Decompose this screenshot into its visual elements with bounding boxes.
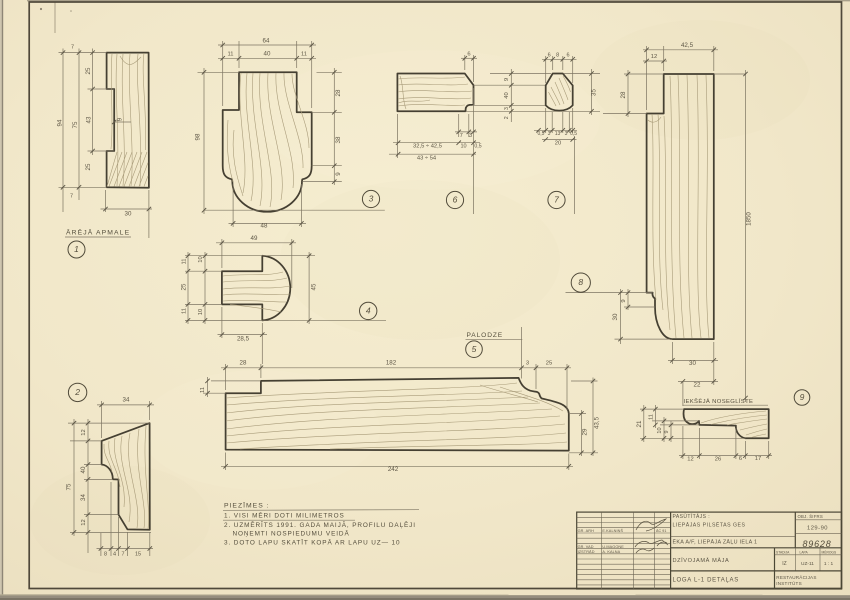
svg-text:INSTITŪTS: INSTITŪTS — [776, 580, 802, 586]
svg-text:98: 98 — [195, 133, 202, 140]
svg-text:3: 3 — [548, 131, 551, 137]
svg-text:0,5: 0,5 — [474, 144, 481, 150]
svg-text:12: 12 — [651, 54, 657, 60]
svg-text:1850: 1850 — [746, 212, 753, 226]
svg-text:1: 1 — [74, 244, 79, 254]
svg-text:A. KALNA: A. KALNA — [602, 550, 620, 554]
svg-text:11: 11 — [182, 308, 188, 314]
svg-text:12: 12 — [687, 457, 693, 463]
svg-text:3: 3 — [369, 194, 374, 204]
svg-text:30: 30 — [125, 211, 132, 218]
svg-text:0,5: 0,5 — [538, 131, 545, 137]
svg-text:75: 75 — [66, 483, 73, 490]
svg-text:11: 11 — [200, 387, 206, 393]
svg-text:94: 94 — [57, 119, 64, 126]
svg-text:21: 21 — [636, 420, 643, 427]
svg-text:3: 3 — [526, 361, 529, 367]
svg-text:PALODZE: PALODZE — [467, 332, 504, 339]
svg-text:PASŪTĪTĀJS :: PASŪTĪTĀJS : — [673, 513, 711, 520]
svg-text:40: 40 — [504, 92, 510, 98]
svg-text:25: 25 — [85, 67, 92, 74]
svg-text:3: 3 — [565, 131, 568, 137]
svg-text:17: 17 — [755, 456, 761, 462]
svg-text:38: 38 — [335, 136, 342, 143]
svg-text:9: 9 — [504, 78, 510, 81]
svg-text:242: 242 — [388, 466, 399, 473]
svg-text:13: 13 — [555, 131, 561, 137]
svg-text:MĒROGS: MĒROGS — [822, 551, 837, 555]
svg-text:1. VISI MĒRI DOTI MILIMETRO: 1. VISI MĒRI DOTI MILIMETROS — [224, 512, 345, 520]
svg-text:40: 40 — [264, 51, 271, 58]
svg-text:28,5: 28,5 — [237, 336, 250, 343]
svg-text:28: 28 — [620, 91, 627, 98]
svg-text:NOŅEMTI NOSPIEDUMU VEIDĀ: NOŅEMTI NOSPIEDUMU VEIDĀ — [233, 529, 350, 537]
svg-text:30: 30 — [612, 313, 619, 320]
svg-text:7: 7 — [554, 195, 559, 205]
svg-text:RESTAURĀCIJAS: RESTAURĀCIJAS — [776, 574, 816, 580]
svg-text:6: 6 — [739, 456, 742, 462]
svg-text:U.MAGONE: U.MAGONE — [602, 545, 624, 549]
svg-text:GR. ARH: GR. ARH — [578, 529, 594, 533]
svg-text:E.KALNIŅŠ: E.KALNIŅŠ — [602, 528, 623, 533]
svg-text:ĀRĒJĀ APMALE: ĀRĒJĀ APMALE — [66, 229, 130, 237]
svg-text:2: 2 — [504, 116, 510, 119]
svg-text:3: 3 — [469, 133, 472, 139]
svg-text:25: 25 — [181, 283, 188, 290]
svg-text:LOGA L-1 DETAĻAS: LOGA L-1 DETAĻAS — [673, 578, 739, 584]
svg-text:11: 11 — [227, 52, 233, 58]
svg-text:9: 9 — [800, 392, 805, 402]
svg-text:ĀC 91: ĀC 91 — [656, 529, 667, 533]
svg-text:10: 10 — [198, 256, 204, 262]
svg-text:8: 8 — [556, 53, 559, 59]
svg-text:LIEPĀJAS PILSĒTAS GES: LIEPĀJAS PILSĒTAS GES — [673, 522, 746, 529]
svg-text:15: 15 — [135, 552, 141, 558]
svg-text:6: 6 — [467, 52, 470, 58]
svg-text:6: 6 — [566, 53, 569, 59]
svg-text:8: 8 — [578, 277, 583, 287]
svg-text:7: 7 — [71, 45, 74, 51]
svg-text:3. DOTO LAPU SKATĪT KOPĀ A: 3. DOTO LAPU SKATĪT KOPĀ AR LAPU UZ— 10 — [224, 538, 400, 546]
svg-text:ĒKA A/F, LIEPĀJA ZĀĻU IELA 1: ĒKA A/F, LIEPĀJA ZĀĻU IELA 1 — [673, 539, 758, 546]
svg-text:48: 48 — [261, 223, 268, 230]
svg-text:IZ: IZ — [782, 561, 786, 567]
svg-text:PIEZĪMES :: PIEZĪMES : — [224, 501, 270, 509]
svg-text:182: 182 — [386, 360, 397, 367]
svg-text:29: 29 — [582, 428, 589, 435]
svg-text:25: 25 — [85, 163, 92, 170]
svg-text:43,5: 43,5 — [594, 416, 601, 429]
svg-text:STADIJA: STADIJA — [776, 551, 790, 555]
svg-text:DZĪVOJAMĀ MĀJA: DZĪVOJAMĀ MĀJA — [673, 557, 730, 564]
svg-text:10: 10 — [657, 427, 663, 433]
svg-text:32,5 ÷ 42,5: 32,5 ÷ 42,5 — [413, 144, 442, 150]
svg-text:43 ÷ 54: 43 ÷ 54 — [417, 155, 437, 161]
svg-text:2: 2 — [74, 387, 80, 397]
svg-text:25: 25 — [546, 361, 552, 367]
svg-text:7: 7 — [460, 133, 463, 139]
svg-text:IEKŠĒJĀ NOSEGLĪSTE: IEKŠĒJĀ NOSEGLĪSTE — [684, 398, 754, 405]
svg-text:5: 5 — [472, 344, 477, 354]
svg-text:43: 43 — [86, 116, 93, 123]
svg-text:11: 11 — [301, 52, 307, 58]
svg-text:9: 9 — [335, 172, 342, 176]
svg-text:11: 11 — [182, 258, 188, 264]
svg-text:20: 20 — [555, 141, 561, 147]
svg-text:22: 22 — [694, 381, 701, 388]
svg-text:45: 45 — [311, 283, 318, 290]
svg-text:IZSTRĀD: IZSTRĀD — [578, 550, 595, 554]
svg-text:4: 4 — [113, 552, 116, 558]
svg-text:6: 6 — [548, 53, 551, 59]
svg-text:42,5: 42,5 — [681, 42, 694, 49]
svg-text:12: 12 — [81, 519, 87, 525]
svg-text:GR. VAD: GR. VAD — [578, 545, 594, 549]
svg-text:34: 34 — [80, 494, 87, 501]
svg-text:49: 49 — [251, 235, 258, 242]
svg-text:0,5: 0,5 — [570, 131, 577, 137]
svg-text:64: 64 — [263, 38, 270, 45]
svg-text:129-90: 129-90 — [807, 526, 828, 532]
svg-text:3: 3 — [504, 107, 510, 110]
svg-text:4: 4 — [366, 306, 371, 316]
svg-text:10: 10 — [198, 309, 204, 315]
svg-text:28: 28 — [335, 89, 342, 96]
svg-text:6: 6 — [453, 195, 458, 205]
svg-text:10: 10 — [460, 144, 466, 150]
svg-text:7: 7 — [121, 552, 124, 558]
svg-text:11: 11 — [648, 414, 654, 420]
svg-text:35: 35 — [590, 89, 597, 96]
svg-text:1 : 1: 1 : 1 — [824, 561, 834, 567]
svg-text:89628: 89628 — [802, 539, 831, 549]
svg-text:LAPA: LAPA — [800, 551, 809, 555]
svg-text:9: 9 — [117, 117, 124, 121]
svg-text:OBJ. ŠIFRS: OBJ. ŠIFRS — [798, 514, 823, 519]
svg-text:12: 12 — [81, 429, 87, 435]
svg-text:9: 9 — [621, 299, 627, 302]
svg-text:75: 75 — [72, 121, 79, 128]
svg-text:40: 40 — [80, 466, 87, 473]
svg-text:30: 30 — [689, 360, 696, 367]
svg-text:UZ-11: UZ-11 — [801, 561, 814, 567]
svg-text:28: 28 — [240, 360, 247, 367]
svg-text:7: 7 — [70, 194, 73, 200]
svg-text:8: 8 — [104, 552, 107, 558]
svg-text:9: 9 — [664, 430, 670, 433]
svg-text:2. UZMĒRĪTS 1991. GADA MAIJĀ: 2. UZMĒRĪTS 1991. GADA MAIJĀ, PROFILU DA… — [224, 521, 416, 529]
svg-text:34: 34 — [123, 397, 130, 404]
svg-text:26: 26 — [715, 457, 721, 463]
